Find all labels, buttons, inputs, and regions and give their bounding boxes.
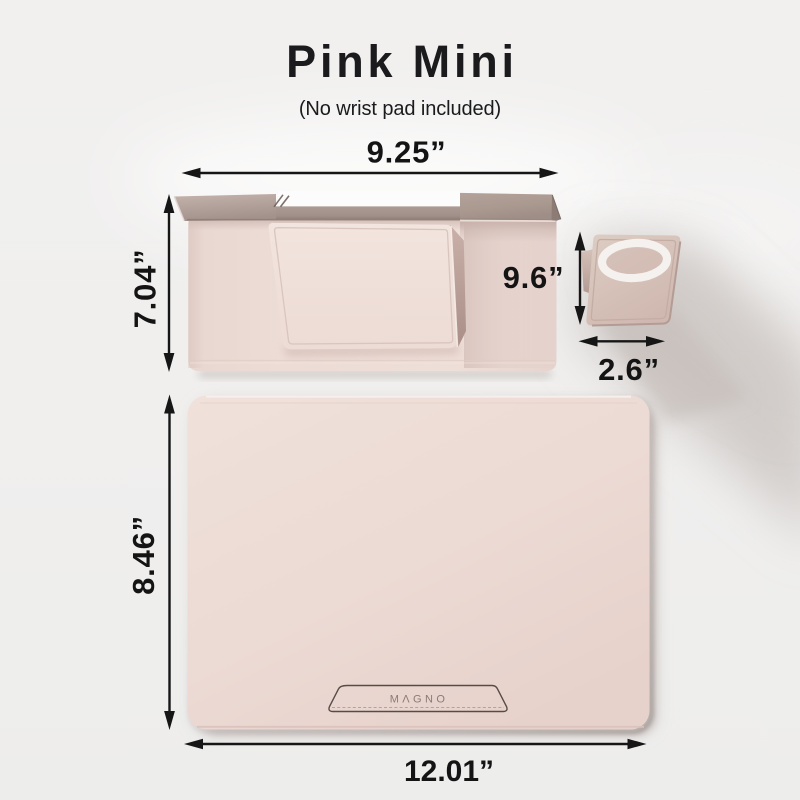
svg-text:12.01”: 12.01” bbox=[404, 755, 494, 788]
svg-text:9.25”: 9.25” bbox=[367, 135, 447, 170]
svg-text:Pink Mini: Pink Mini bbox=[286, 36, 518, 87]
svg-text:8.46”: 8.46” bbox=[126, 515, 161, 595]
svg-text:9.6”: 9.6” bbox=[503, 260, 565, 295]
svg-text:2.6”: 2.6” bbox=[598, 352, 660, 387]
svg-text:MΛGNO: MΛGNO bbox=[390, 694, 449, 706]
svg-text:(No wrist pad included): (No wrist pad included) bbox=[299, 98, 501, 120]
svg-text:7.04”: 7.04” bbox=[128, 249, 163, 329]
